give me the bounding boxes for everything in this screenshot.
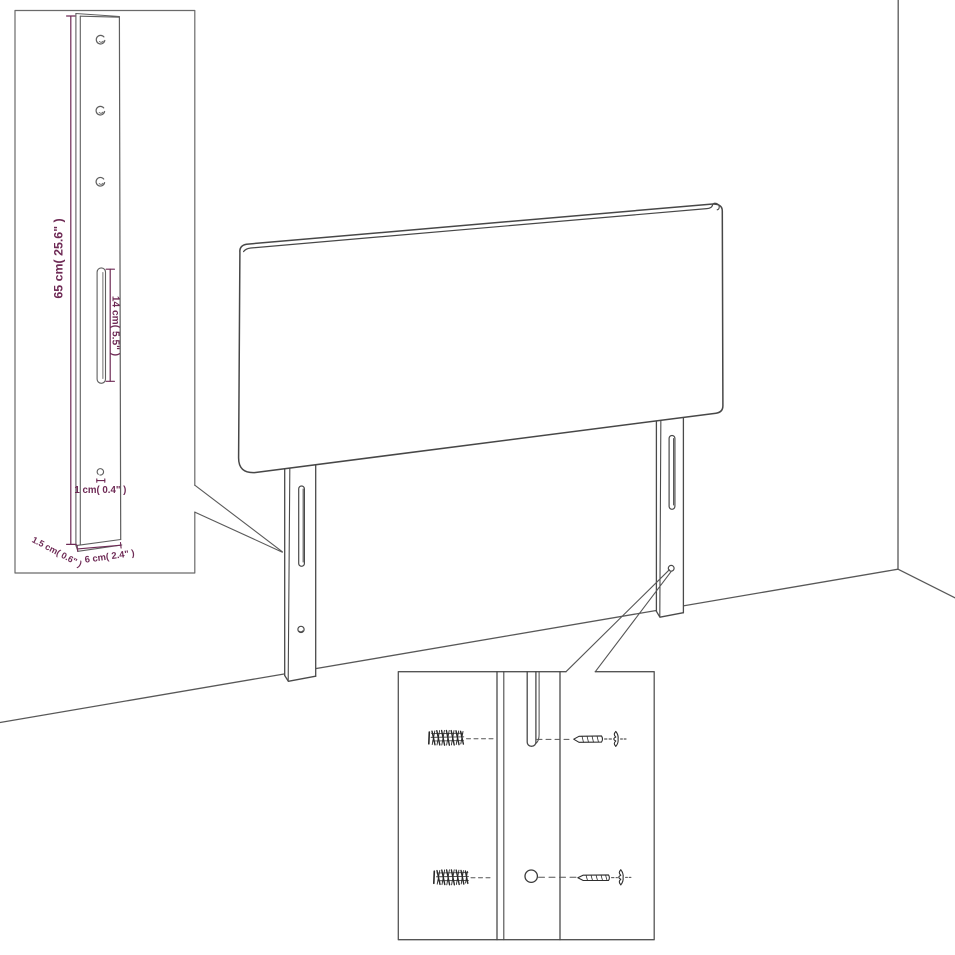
svg-text:14 cm( 5.5" ): 14 cm( 5.5" )	[109, 296, 120, 356]
svg-text:1 cm( 0.4" ): 1 cm( 0.4" )	[74, 485, 126, 496]
svg-text:65 cm( 25.6" ): 65 cm( 25.6" )	[52, 218, 66, 298]
